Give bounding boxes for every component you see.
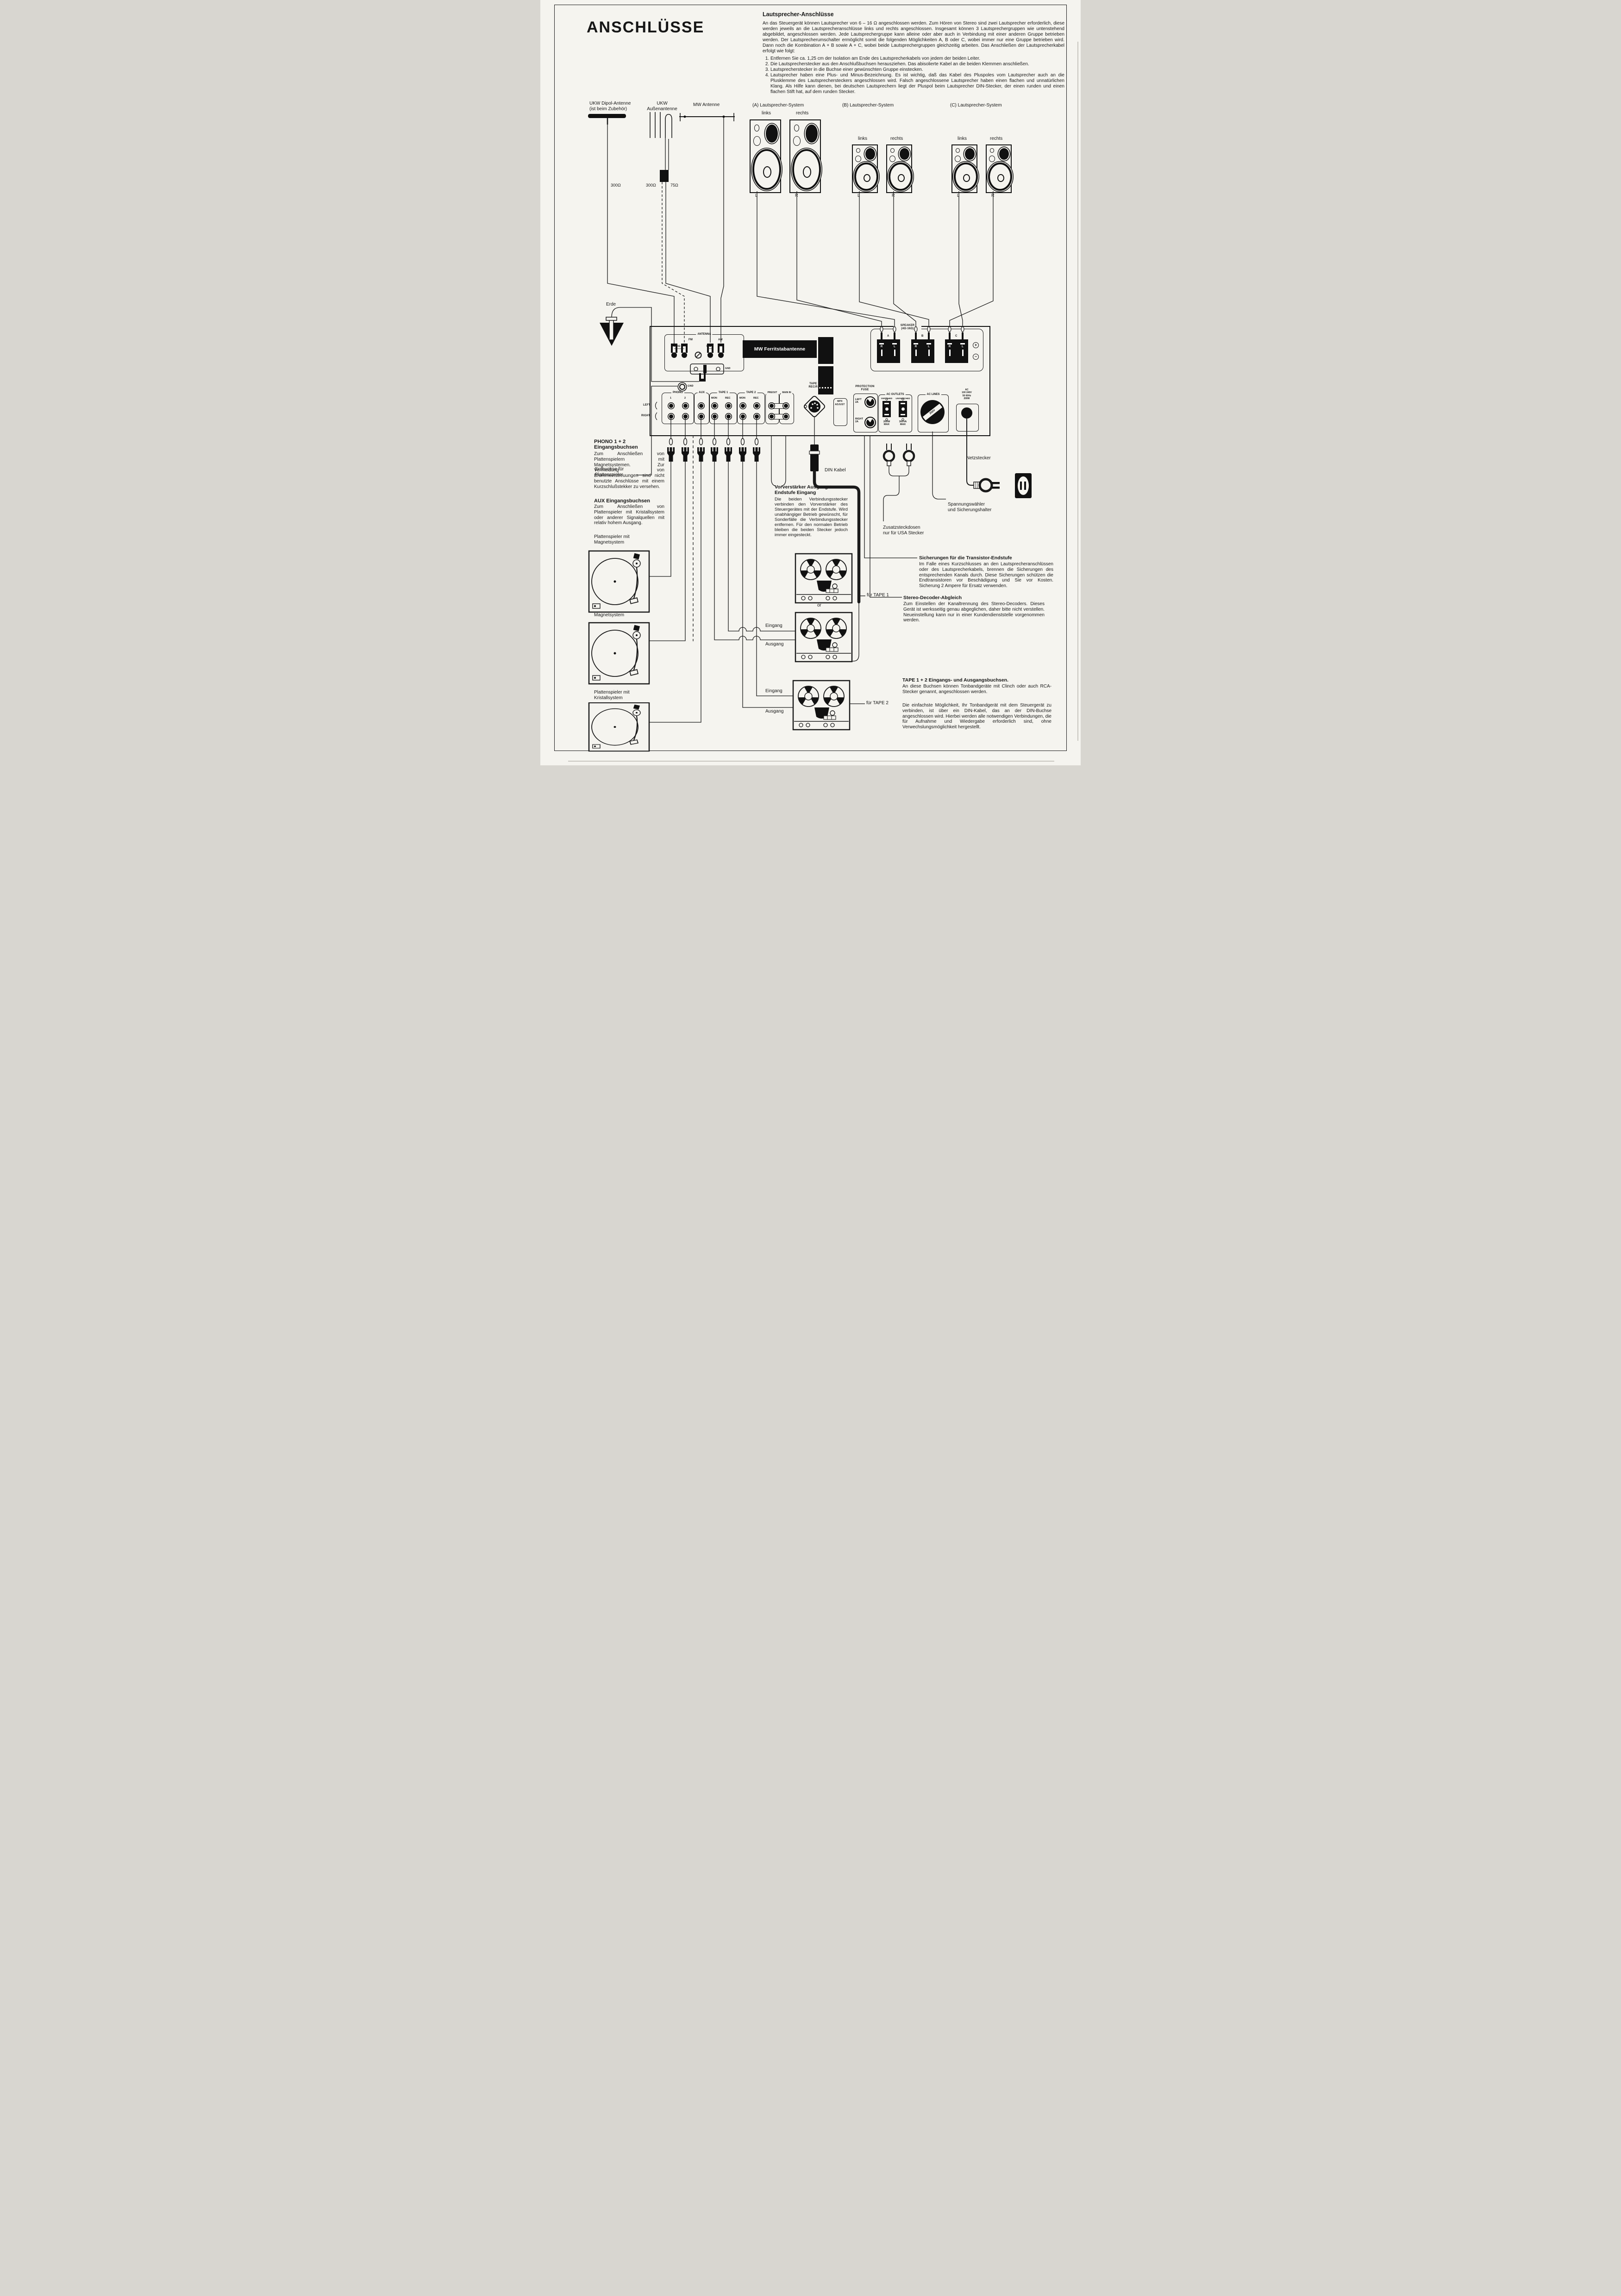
speaker-c-left-wire bbox=[959, 191, 963, 333]
tape1-rec-wire bbox=[728, 461, 795, 631]
rca-plugs bbox=[667, 447, 760, 462]
antenna-terminal bbox=[682, 352, 687, 358]
speaker-pin-connectors bbox=[880, 327, 964, 340]
spannungswaehler-pointer bbox=[933, 432, 946, 499]
wiring-diagram bbox=[540, 0, 1081, 765]
speaker-b-right-wire bbox=[894, 191, 916, 333]
power-cord bbox=[967, 419, 974, 485]
dipole-antenna-icon bbox=[588, 114, 626, 118]
turntable-3 bbox=[589, 703, 649, 751]
phono1-wire bbox=[650, 461, 671, 576]
phono2-wire bbox=[650, 461, 685, 641]
spade-lug-icon bbox=[681, 344, 688, 353]
speaker-a-left-wire bbox=[757, 191, 895, 333]
preout-wire bbox=[771, 435, 776, 486]
antenna-terminal bbox=[671, 352, 677, 358]
dipole-feed-wire bbox=[607, 125, 674, 344]
antenna-terminal bbox=[707, 352, 713, 358]
spade-lug-icon bbox=[718, 344, 724, 353]
spade-lug-icon bbox=[671, 344, 677, 353]
turntable-2 bbox=[589, 623, 649, 684]
speaker-a-right-wire bbox=[797, 191, 882, 333]
tape-deck-3 bbox=[793, 681, 850, 730]
tape2-mon-wire bbox=[743, 461, 793, 707]
antenna-terminal bbox=[718, 352, 724, 358]
balun-icon bbox=[660, 170, 669, 182]
aux-wire bbox=[650, 461, 701, 722]
power-plug-icon bbox=[974, 479, 1000, 491]
speaker-c-right-wire bbox=[950, 191, 993, 333]
outdoor-75-wire bbox=[666, 182, 710, 343]
usa-plug-join-wire bbox=[889, 466, 909, 476]
din-plug-icon bbox=[810, 444, 819, 471]
manual-page: ANSCHLÜSSE Lautsprecher-Anschlüsse An da… bbox=[540, 0, 1081, 765]
rca-plug-rings bbox=[670, 438, 758, 445]
speaker-b-left-wire bbox=[859, 191, 929, 333]
tape2-rec-wire bbox=[757, 461, 793, 696]
turntable-1 bbox=[589, 551, 649, 612]
outdoor-antenna-icon bbox=[650, 112, 660, 138]
usa-plug-icons bbox=[884, 444, 914, 466]
din-socket-icon bbox=[803, 395, 826, 418]
outdoor-300-wire bbox=[662, 182, 684, 343]
zusatz-pointer bbox=[883, 476, 899, 521]
spade-lug-icon bbox=[707, 344, 713, 353]
tape-deck-2 bbox=[795, 613, 852, 662]
erdbuchse-wire bbox=[637, 386, 677, 475]
mainin-wire bbox=[781, 435, 786, 486]
tape1-mon-wire bbox=[714, 461, 795, 640]
tape-deck-1 bbox=[795, 554, 852, 603]
mw-feed-wire bbox=[721, 118, 724, 343]
panel-gnd-strip bbox=[690, 364, 724, 374]
